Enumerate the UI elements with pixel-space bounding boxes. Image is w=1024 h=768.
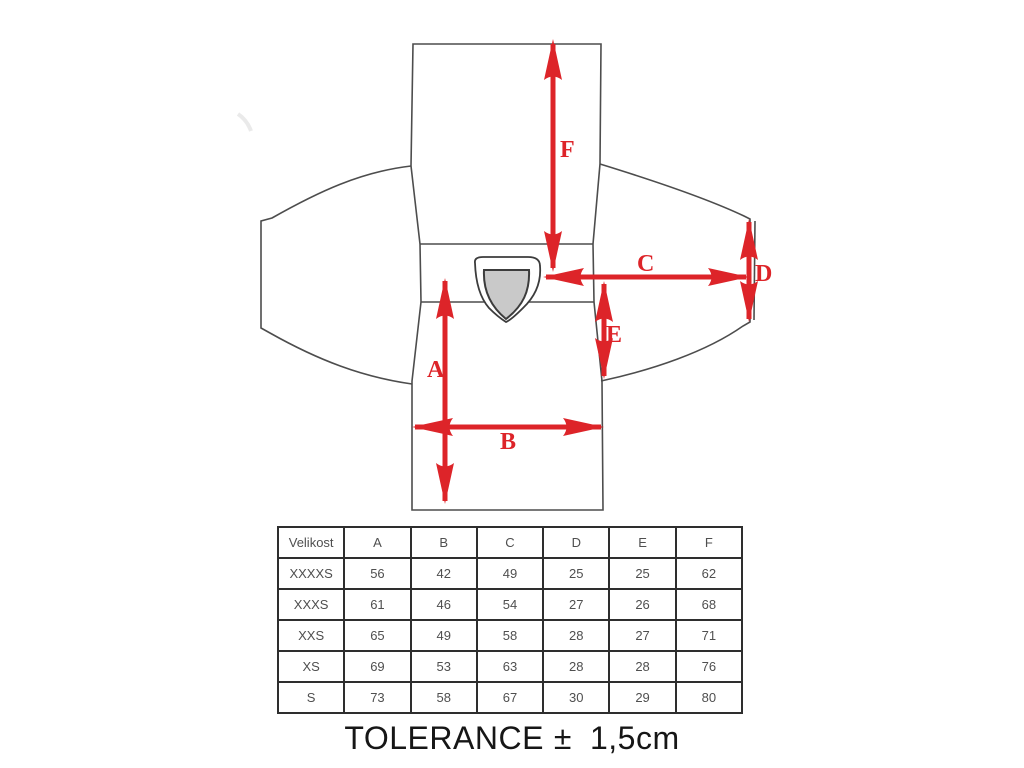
value-cell: 46	[411, 589, 477, 620]
size-table-header-cell: B	[411, 527, 477, 558]
watermark-smudge	[238, 114, 251, 131]
value-cell: 56	[344, 558, 410, 589]
size-cell: XXXS	[278, 589, 344, 620]
size-cell: S	[278, 682, 344, 713]
arrow-b-head-right	[563, 418, 604, 436]
value-cell: 58	[411, 682, 477, 713]
value-cell: 69	[344, 651, 410, 682]
size-table-header-cell: C	[477, 527, 543, 558]
size-table-header-cell: Velikost	[278, 527, 344, 558]
value-cell: 27	[609, 620, 675, 651]
size-cell: XXXXS	[278, 558, 344, 589]
tolerance-label: TOLERANCE	[344, 720, 544, 757]
left-sleeve-outline	[261, 166, 412, 384]
tolerance-note: TOLERANCE ± 1,5cm	[0, 720, 1024, 757]
size-cell: XS	[278, 651, 344, 682]
value-cell: 30	[543, 682, 609, 713]
measure-label-d: D	[755, 261, 772, 287]
arrow-c-head-left	[543, 268, 584, 286]
value-cell: 49	[411, 620, 477, 651]
value-cell: 58	[477, 620, 543, 651]
arrow-b-head-left	[412, 418, 453, 436]
size-table: Velikost A B C D E F XXXXS 56 42 49 25 2…	[277, 526, 743, 714]
size-table-header-cell: D	[543, 527, 609, 558]
value-cell: 73	[344, 682, 410, 713]
value-cell: 28	[609, 651, 675, 682]
arrow-d-head-down	[740, 281, 758, 322]
arrow-a-head-up	[436, 278, 454, 319]
measure-label-f: F	[560, 137, 575, 163]
value-cell: 25	[543, 558, 609, 589]
value-cell: 53	[411, 651, 477, 682]
table-row: XXS 65 49 58 28 27 71	[278, 620, 742, 651]
value-cell: 65	[344, 620, 410, 651]
table-row: XXXS 61 46 54 27 26 68	[278, 589, 742, 620]
measure-label-c: C	[637, 251, 654, 277]
value-cell: 29	[609, 682, 675, 713]
measure-label-b: B	[500, 429, 516, 455]
measure-label-a: A	[427, 357, 445, 383]
value-cell: 27	[543, 589, 609, 620]
value-cell: 71	[676, 620, 742, 651]
value-cell: 61	[344, 589, 410, 620]
value-cell: 62	[676, 558, 742, 589]
value-cell: 63	[477, 651, 543, 682]
arrow-f-head-down	[544, 231, 562, 272]
size-table-header-row: Velikost A B C D E F	[278, 527, 742, 558]
table-row: S 73 58 67 30 29 80	[278, 682, 742, 713]
arrow-a-head-down	[436, 463, 454, 504]
value-cell: 42	[411, 558, 477, 589]
arrow-f-head-up	[544, 39, 562, 80]
size-table-header-cell: E	[609, 527, 675, 558]
arrow-e-head-up	[595, 281, 613, 322]
size-table-header-cell: A	[344, 527, 410, 558]
value-cell: 26	[609, 589, 675, 620]
measure-label-e: E	[606, 322, 622, 348]
value-cell: 28	[543, 651, 609, 682]
size-chart-page: F A B C D E Velikost A B C D E F XXXXS 5…	[0, 0, 1024, 768]
table-row: XS 69 53 63 28 28 76	[278, 651, 742, 682]
table-row: XXXXS 56 42 49 25 25 62	[278, 558, 742, 589]
value-cell: 67	[477, 682, 543, 713]
tolerance-value: 1,5cm	[590, 720, 680, 757]
value-cell: 68	[676, 589, 742, 620]
plus-minus-symbol: ±	[554, 720, 572, 757]
value-cell: 76	[676, 651, 742, 682]
size-table-header-cell: F	[676, 527, 742, 558]
value-cell: 25	[609, 558, 675, 589]
value-cell: 80	[676, 682, 742, 713]
size-cell: XXS	[278, 620, 344, 651]
collar-badge-inner	[484, 270, 529, 319]
value-cell: 28	[543, 620, 609, 651]
value-cell: 49	[477, 558, 543, 589]
value-cell: 54	[477, 589, 543, 620]
